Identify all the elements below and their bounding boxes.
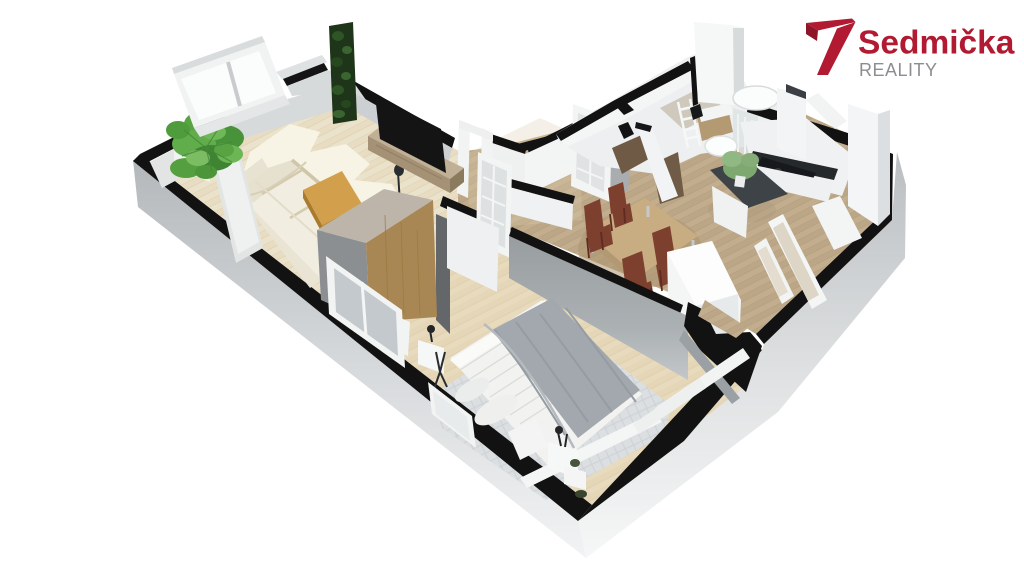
- svg-text:REALITY: REALITY: [859, 60, 938, 80]
- svg-text:Sedmička: Sedmička: [858, 25, 1015, 62]
